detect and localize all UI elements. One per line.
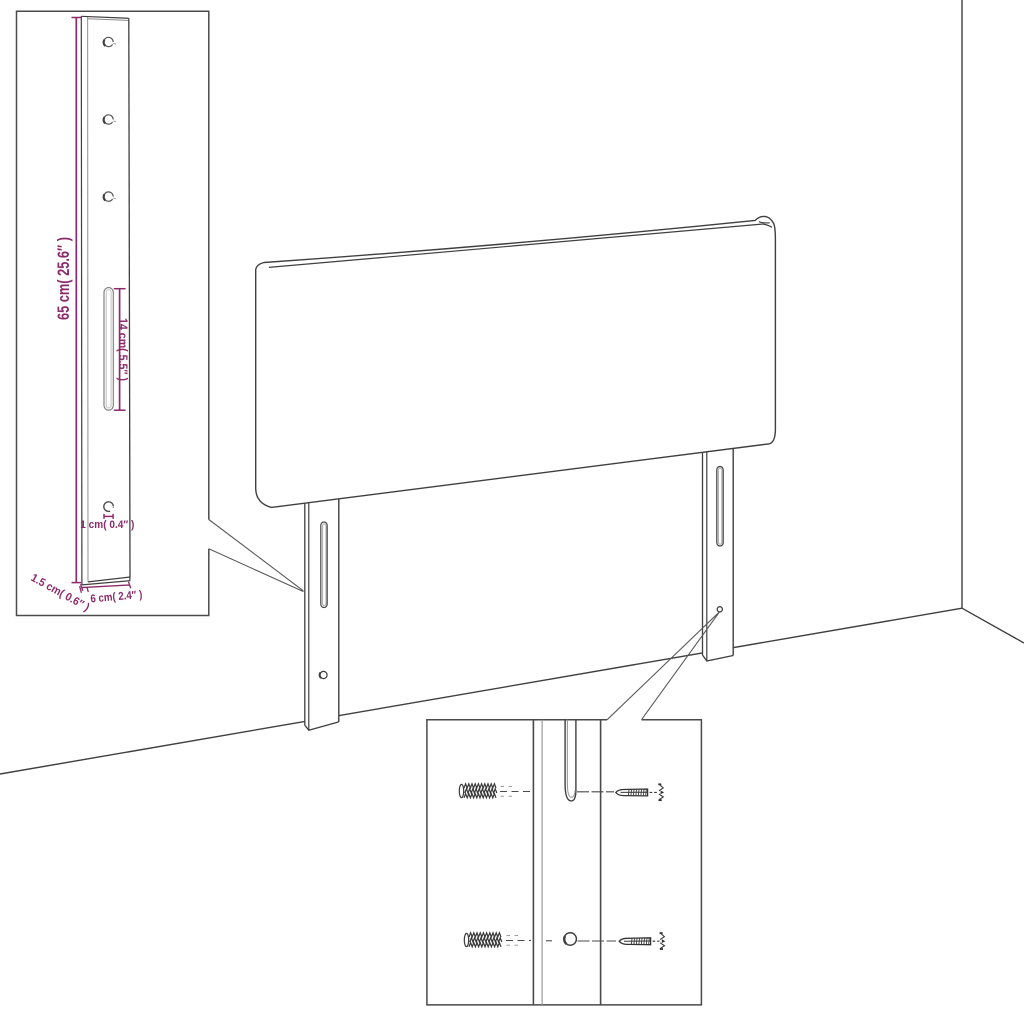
svg-text:65 cm( 25.6″ ): 65 cm( 25.6″ ) xyxy=(55,237,73,320)
svg-text:1 cm( 0.4″ ): 1 cm( 0.4″ ) xyxy=(80,519,134,531)
svg-text:14 cm( 5.5″ ): 14 cm( 5.5″ ) xyxy=(116,318,130,381)
